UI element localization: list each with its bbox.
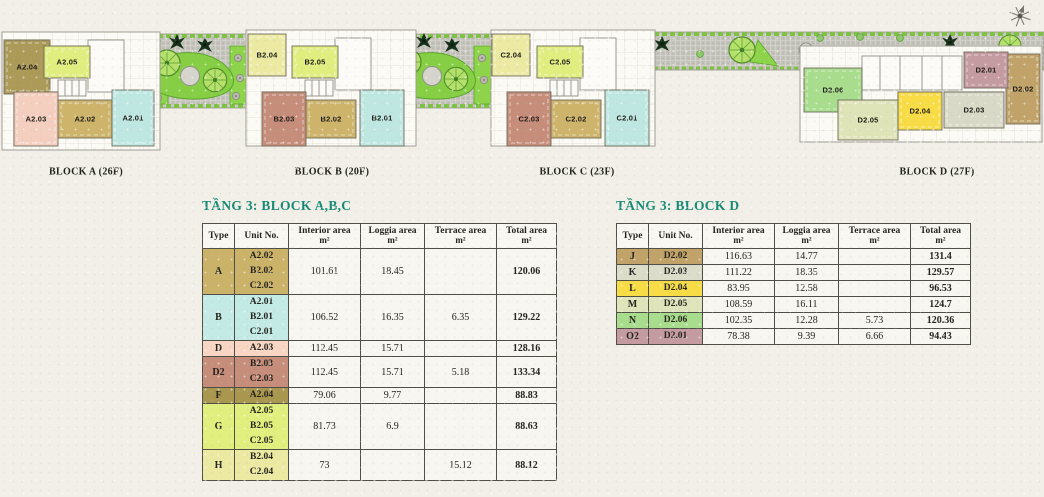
unit-no: D2.02 (649, 249, 702, 264)
area-table-block-d: TẦNG 3: BLOCK D TypeUnit No.Interior are… (616, 198, 970, 345)
total-area-cell: 128.16 (497, 341, 557, 357)
column-header: Loggia aream² (361, 224, 425, 249)
table-row: ND2.06102.3512.285.73120.36 (617, 313, 971, 329)
total-area-cell: 94.43 (911, 329, 971, 345)
terrace-area-cell (425, 388, 497, 404)
plan-unit-label: C2.04 (500, 51, 522, 60)
total-area-cell: 129.22 (497, 295, 557, 341)
unit-no-cell: A2.03 (235, 341, 289, 357)
table-row: DA2.03112.4515.71128.16 (203, 341, 557, 357)
total-area-cell: 129.57 (911, 265, 971, 281)
plan-unit-D2.05: D2.05 (838, 100, 898, 140)
column-header: Terrace aream² (839, 224, 911, 249)
plaza-circle (181, 67, 200, 86)
type-cell: K (617, 265, 649, 281)
unit-no: B2.01 (235, 310, 288, 325)
terrace-area-cell (839, 249, 911, 265)
plan-unit-B2.03: B2.03 (262, 92, 306, 146)
unit-no-cell: D2.01 (649, 329, 703, 345)
plan-unit-C2.05: C2.05 (537, 46, 583, 78)
unit-no: C2.05 (235, 434, 288, 449)
type-cell: O2 (617, 329, 649, 345)
area-table-d-body: TypeUnit No.Interior aream²Loggia aream²… (616, 223, 970, 345)
block-label: BLOCK A (26F) (49, 167, 123, 178)
table-row: KD2.03111.2218.35129.57 (617, 265, 971, 281)
plan-unit-C2.01: C2.01 (605, 90, 649, 146)
unit-no: B2.04 (235, 450, 288, 465)
unit-no: D2.06 (649, 313, 702, 328)
terrace-area-cell: 6.66 (839, 329, 911, 345)
unit-no: C2.04 (235, 465, 288, 480)
unit-no-cell: A2.05B2.05C2.05 (235, 404, 289, 450)
total-area-cell: 133.34 (497, 357, 557, 388)
column-header: Total aream² (497, 224, 557, 249)
column-header: Interior aream² (289, 224, 361, 249)
plan-unit-label: A2.04 (16, 63, 38, 72)
tree-icon (444, 67, 467, 90)
plan-unit-label: B2.01 (371, 114, 392, 123)
table-row: D2B2.03C2.03112.4515.715.18133.34 (203, 357, 557, 388)
unit-no: B2.03 (235, 357, 288, 372)
unit-no-cell: D2.06 (649, 313, 703, 329)
unit-no: A2.04 (235, 388, 288, 403)
total-area-cell: 120.36 (911, 313, 971, 329)
area-table-block-abc: TẦNG 3: BLOCK A,B,C TypeUnit No.Interior… (202, 198, 556, 481)
plan-unit-A2.02: A2.02 (58, 100, 112, 138)
type-cell: F (203, 388, 235, 404)
unit-no-cell: A2.01B2.01C2.01 (235, 295, 289, 341)
unit-no-cell: A2.04 (235, 388, 289, 404)
unit-no-cell: D2.04 (649, 281, 703, 297)
table-title-d: TẦNG 3: BLOCK D (616, 198, 970, 214)
plan-unit-label: D2.06 (822, 86, 843, 95)
plan-unit-D2.04: D2.04 (898, 92, 942, 130)
table-title-abc: TẦNG 3: BLOCK A,B,C (202, 198, 556, 214)
plan-unit-label: B2.02 (320, 115, 341, 124)
column-header: Type (203, 224, 235, 249)
table-row: AA2.02B2.02C2.02101.6118.45120.06 (203, 249, 557, 295)
plan-unit-label: A2.01 (122, 114, 143, 123)
table-row: GA2.05B2.05C2.0581.736.988.63 (203, 404, 557, 450)
tree-icon (729, 37, 755, 63)
interior-area-cell: 83.95 (703, 281, 775, 297)
terrace-area-cell (425, 249, 497, 295)
column-header: Loggia aream² (775, 224, 839, 249)
plan-unit-label: D2.01 (975, 66, 996, 75)
type-cell: B (203, 295, 235, 341)
plan-unit-label: C2.01 (616, 114, 637, 123)
plan-unit-C2.03: C2.03 (507, 92, 551, 146)
unit-no: C2.01 (235, 325, 288, 340)
unit-no-cell: D2.02 (649, 249, 703, 265)
interior-area-cell: 112.45 (289, 341, 361, 357)
plan-unit-A2.03: A2.03 (14, 92, 58, 146)
unit-no: C2.03 (235, 372, 288, 387)
interior-area-cell: 111.22 (703, 265, 775, 281)
terrace-area-cell (425, 341, 497, 357)
plan-unit-label: C2.03 (518, 115, 539, 124)
block-label: BLOCK C (23F) (539, 167, 614, 178)
interior-area-cell: 102.35 (703, 313, 775, 329)
table-row: O2D2.0178.389.396.6694.43 (617, 329, 971, 345)
loggia-area-cell: 6.9 (361, 404, 425, 450)
column-header: Unit No. (235, 224, 289, 249)
total-area-cell: 88.83 (497, 388, 557, 404)
plan-unit-D2.03: D2.03 (944, 92, 1004, 128)
plan-unit-label: A2.03 (25, 115, 46, 124)
loggia-area-cell: 16.11 (775, 297, 839, 313)
unit-no: D2.05 (649, 297, 702, 312)
area-table: TypeUnit No.Interior aream²Loggia aream²… (202, 223, 557, 481)
block-label: BLOCK B (20F) (295, 167, 369, 178)
unit-no: B2.02 (235, 264, 288, 279)
column-header: Interior aream² (703, 224, 775, 249)
column-header: Type (617, 224, 649, 249)
loggia-area-cell: 14.77 (775, 249, 839, 265)
tree-icon (203, 68, 226, 91)
loggia-area-cell: 16.35 (361, 295, 425, 341)
interior-area-cell: 81.73 (289, 404, 361, 450)
loggia-area-cell: 18.35 (775, 265, 839, 281)
plan-unit-label: D2.03 (963, 106, 984, 115)
interior-area-cell: 112.45 (289, 357, 361, 388)
terrace-area-cell: 15.12 (425, 450, 497, 481)
column-header: Total aream² (911, 224, 971, 249)
interior-area-cell: 108.59 (703, 297, 775, 313)
terrace-area-cell: 5.73 (839, 313, 911, 329)
table-row: BA2.01B2.01C2.01106.5216.356.35129.22 (203, 295, 557, 341)
unit-no-cell: B2.03C2.03 (235, 357, 289, 388)
terrace-area-cell (839, 265, 911, 281)
column-header: Unit No. (649, 224, 703, 249)
unit-no-cell: D2.03 (649, 265, 703, 281)
table-row: MD2.05108.5916.11124.7 (617, 297, 971, 313)
terrace-area-cell (839, 281, 911, 297)
plan-unit-A2.04: A2.04 (4, 40, 50, 94)
type-cell: D2 (203, 357, 235, 388)
interior-area-cell: 106.52 (289, 295, 361, 341)
loggia-area-cell: 15.71 (361, 341, 425, 357)
total-area-cell: 131.4 (911, 249, 971, 265)
unit-no: A2.01 (235, 295, 288, 310)
terrace-area-cell (839, 297, 911, 313)
loggia-area-cell: 9.77 (361, 388, 425, 404)
interior-area-cell: 116.63 (703, 249, 775, 265)
plan-unit-B2.05: B2.05 (292, 46, 338, 78)
interior-area-cell: 78.38 (703, 329, 775, 345)
plan-unit-B2.02: B2.02 (306, 100, 356, 138)
total-area-cell: 96.53 (911, 281, 971, 297)
unit-no: A2.03 (235, 341, 288, 356)
loggia-area-cell: 9.39 (775, 329, 839, 345)
plan-unit-label: D2.04 (909, 107, 931, 116)
loggia-area-cell (361, 450, 425, 481)
loggia-area-cell: 12.28 (775, 313, 839, 329)
page: A2.04A2.05A2.03A2.02A2.01B2.04B2.05B2.03… (0, 0, 1044, 497)
type-cell: L (617, 281, 649, 297)
plan-unit-A2.01: A2.01 (112, 90, 154, 146)
type-cell: N (617, 313, 649, 329)
unit-no-cell: B2.04C2.04 (235, 450, 289, 481)
interior-area-cell: 79.06 (289, 388, 361, 404)
total-area-cell: 88.63 (497, 404, 557, 450)
table-row: JD2.02116.6314.77131.4 (617, 249, 971, 265)
plan-unit-label: C2.02 (565, 115, 586, 124)
plan-unit-C2.02: C2.02 (551, 100, 601, 138)
compass-north-icon (1006, 2, 1034, 30)
plan-unit-B2.04: B2.04 (248, 34, 286, 76)
unit-no: A2.05 (235, 404, 288, 419)
area-table-abc-body: TypeUnit No.Interior aream²Loggia aream²… (202, 223, 556, 481)
plan-unit-label: D2.05 (857, 116, 878, 125)
unit-no: D2.01 (649, 329, 702, 344)
loggia-area-cell: 12.58 (775, 281, 839, 297)
plan-unit-B2.01: B2.01 (360, 90, 404, 146)
terrace-area-cell (425, 404, 497, 450)
table-row: LD2.0483.9512.5896.53 (617, 281, 971, 297)
loggia-area-cell: 15.71 (361, 357, 425, 388)
type-cell: H (203, 450, 235, 481)
unit-no-cell: A2.02B2.02C2.02 (235, 249, 289, 295)
total-area-cell: 88.12 (497, 450, 557, 481)
site-floor-plan: A2.04A2.05A2.03A2.02A2.01B2.04B2.05B2.03… (0, 0, 1044, 192)
plan-unit-A2.05: A2.05 (44, 46, 90, 78)
loggia-area-cell: 18.45 (361, 249, 425, 295)
interior-area-cell: 73 (289, 450, 361, 481)
type-cell: J (617, 249, 649, 265)
plan-unit-label: B2.05 (304, 58, 325, 67)
type-cell: D (203, 341, 235, 357)
unit-no: A2.02 (235, 249, 288, 264)
terrace-area-cell: 5.18 (425, 357, 497, 388)
unit-no: C2.02 (235, 279, 288, 294)
unit-no: D2.04 (649, 281, 702, 296)
plan-unit-label: D2.02 (1012, 85, 1033, 94)
plan-unit-D2.02: D2.02 (1006, 54, 1040, 124)
table-row: HB2.04C2.047315.1288.12 (203, 450, 557, 481)
plan-unit-C2.04: C2.04 (492, 34, 530, 76)
terrace-area-cell: 6.35 (425, 295, 497, 341)
plan-unit-label: B2.03 (273, 115, 294, 124)
plan-unit-D2.01: D2.01 (964, 52, 1008, 88)
type-cell: M (617, 297, 649, 313)
unit-no: D2.03 (649, 265, 702, 280)
type-cell: G (203, 404, 235, 450)
block-label: BLOCK D (27F) (899, 167, 974, 178)
total-area-cell: 120.06 (497, 249, 557, 295)
plan-unit-label: B2.04 (256, 51, 278, 60)
total-area-cell: 124.7 (911, 297, 971, 313)
column-header: Terrace aream² (425, 224, 497, 249)
area-table: TypeUnit No.Interior aream²Loggia aream²… (616, 223, 971, 345)
plan-unit-label: A2.05 (56, 58, 77, 67)
type-cell: A (203, 249, 235, 295)
unit-no-cell: D2.05 (649, 297, 703, 313)
interior-area-cell: 101.61 (289, 249, 361, 295)
table-row: FA2.0479.069.7788.83 (203, 388, 557, 404)
unit-no: B2.05 (235, 419, 288, 434)
plaza-circle (423, 67, 442, 86)
plan-unit-label: A2.02 (74, 115, 95, 124)
plan-unit-label: C2.05 (549, 58, 570, 67)
